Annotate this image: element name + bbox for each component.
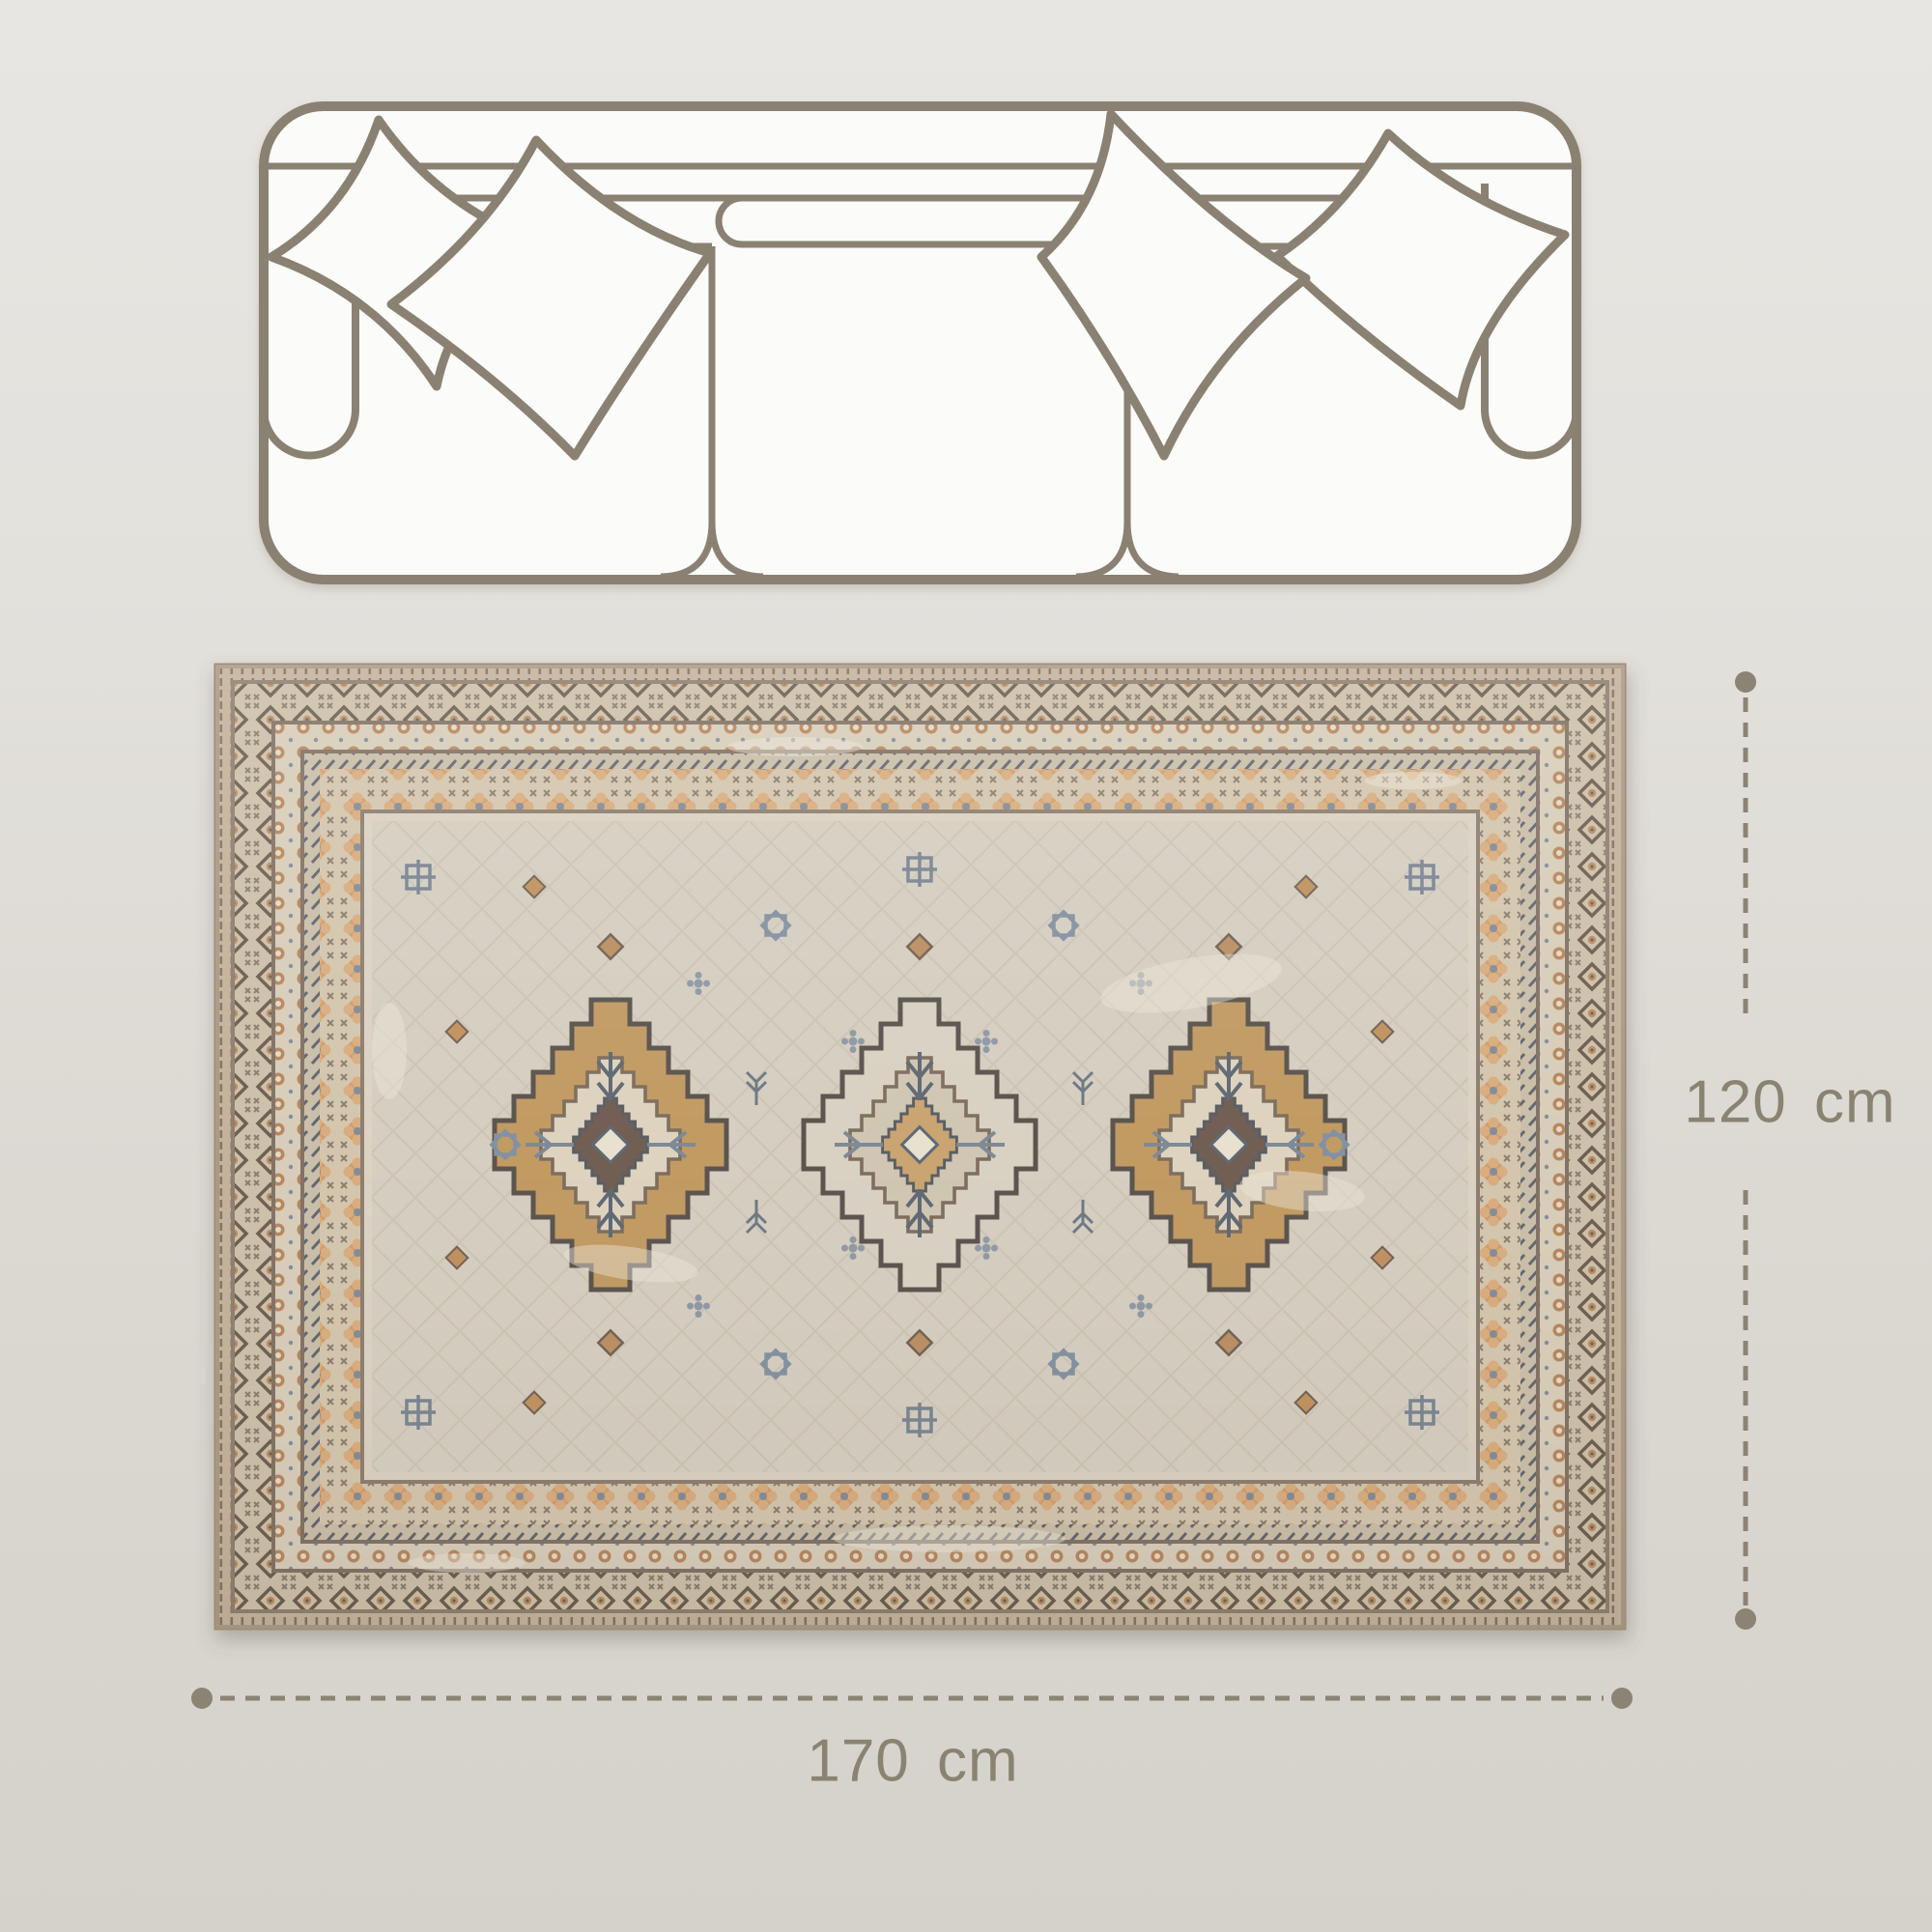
width-dimension-end-dot [1611, 1688, 1633, 1709]
height-dimension-start-dot [1735, 671, 1756, 693]
height-dimension-line [1735, 671, 1756, 1630]
rug-lighting-overlay [215, 665, 1625, 1629]
height-dimension-end-dot [1735, 1608, 1756, 1630]
product-dimension-diagram: 170 cm 120 cm [0, 0, 1932, 1932]
height-dimension-label: 120 cm [1684, 1068, 1895, 1137]
width-dimension-label: 170 cm [807, 1727, 1018, 1796]
width-dimension-line [191, 1688, 1633, 1709]
rug-image [215, 665, 1625, 1629]
diagram-canvas [0, 0, 1932, 1932]
width-dimension-start-dot [191, 1688, 213, 1709]
sofa-illustration [264, 106, 1577, 580]
